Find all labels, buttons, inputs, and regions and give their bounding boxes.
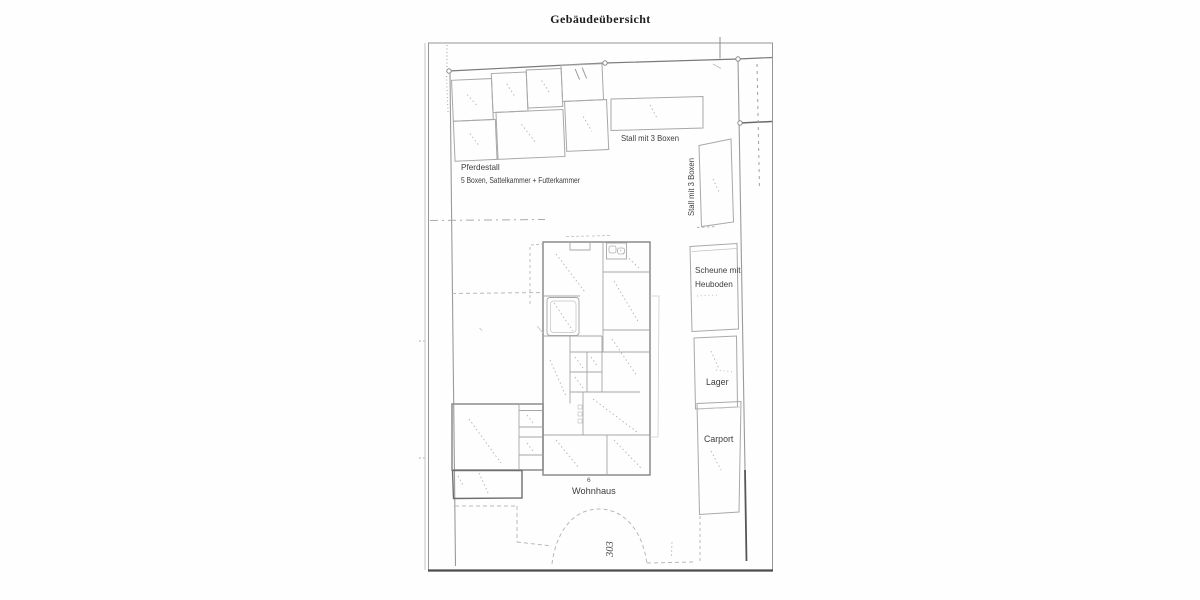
lager-label: Lager <box>706 377 729 387</box>
lager-outline <box>694 336 738 409</box>
stall-top-outline <box>611 97 703 131</box>
left-wing-outline <box>452 404 543 470</box>
annex-outline <box>453 471 523 499</box>
survey-point <box>603 61 607 65</box>
survey-point <box>736 57 740 61</box>
stall-right-outline <box>697 139 734 228</box>
wohnhaus-outline <box>543 236 650 476</box>
survey-point <box>447 69 451 73</box>
driveway-path <box>455 506 700 564</box>
scheune-label-line2: Heuboden <box>695 280 733 289</box>
scheune-label-line1: Scheune mit <box>695 266 741 275</box>
stall-top-label: Stall mit 3 Boxen <box>621 134 679 143</box>
pferdestall-outline <box>451 64 609 162</box>
wohnhaus-label: Wohnhaus <box>572 486 616 496</box>
wohnhaus-number-label: 6 <box>587 477 591 484</box>
carport-label: Carport <box>704 434 734 444</box>
terrace-line <box>650 296 659 437</box>
pferdestall-label-line2: 5 Boxen, Sattelkammer + Futterkammer <box>461 176 580 185</box>
carport-outline <box>697 402 741 515</box>
stall-right-label: Stall mit 3 Boxen <box>687 158 696 216</box>
scanned-site-plan: Gebäudeübersicht <box>0 0 1200 600</box>
yard-fence <box>452 244 543 333</box>
pferdestall-label-line1: Pferdestall <box>461 163 500 172</box>
survey-point <box>738 121 742 125</box>
parcel-number-label: 303 <box>605 541 616 558</box>
site-plan-drawing: Pferdestall 5 Boxen, Sattelkammer + Futt… <box>0 0 1200 600</box>
